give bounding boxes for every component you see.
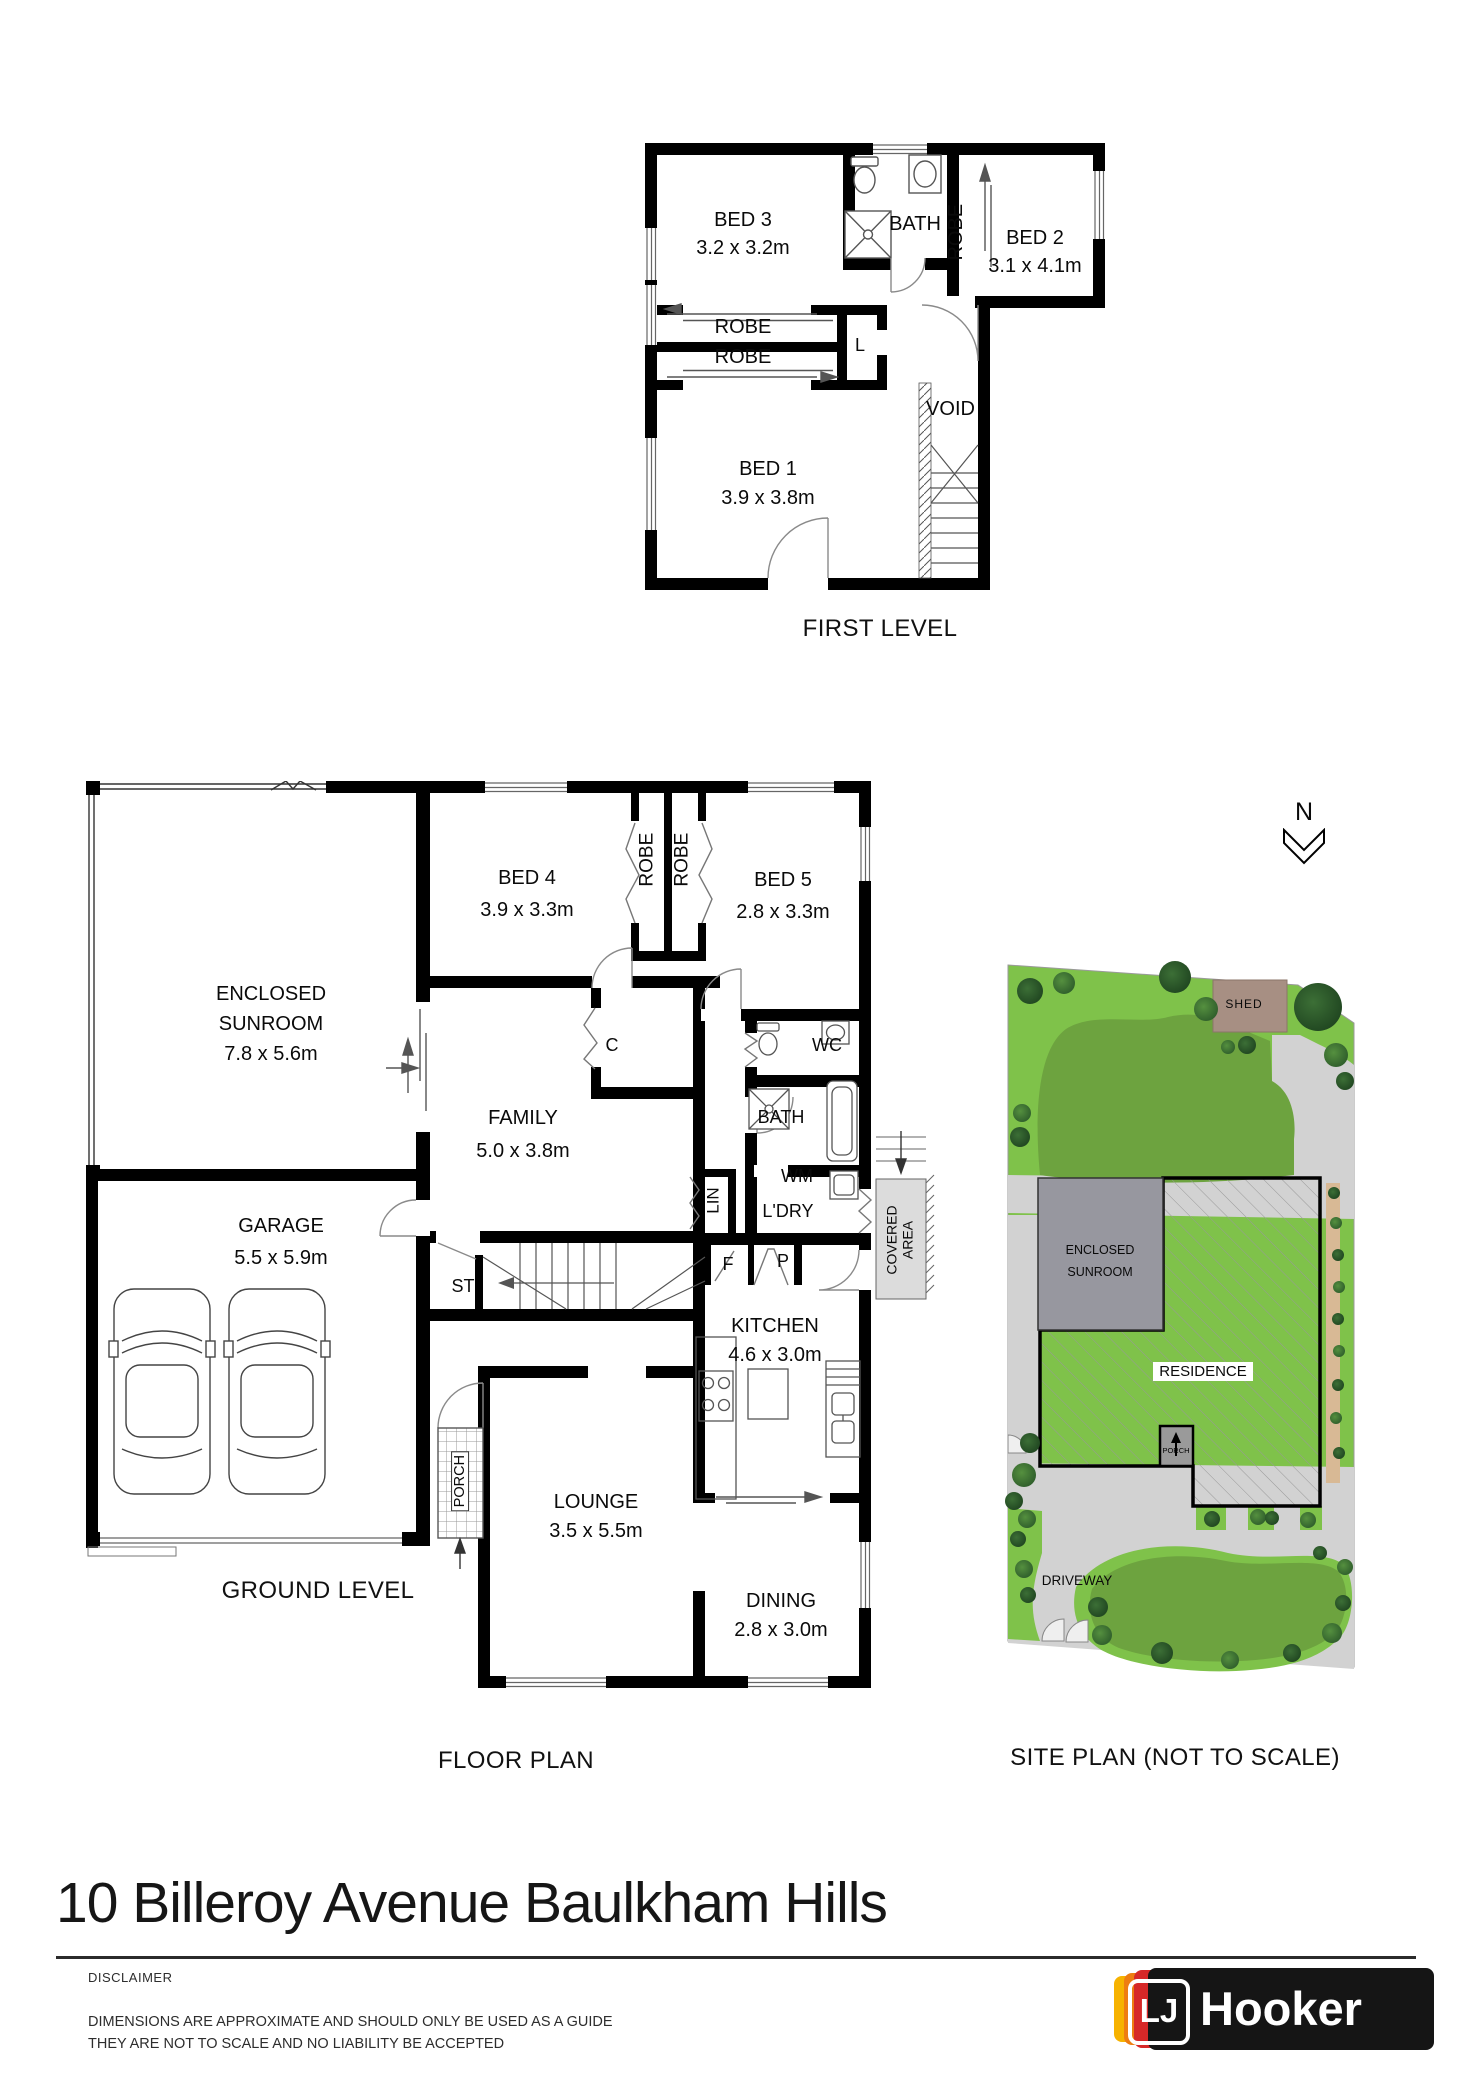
room-label-fridge: F xyxy=(713,1254,743,1274)
sink-icon xyxy=(826,1361,860,1457)
first-level-caption: FIRST LEVEL xyxy=(730,616,1030,643)
north-arrow-icon xyxy=(1282,828,1326,868)
room-label-bed1: BED 1 xyxy=(688,458,848,480)
robe-text: ROBE xyxy=(671,833,692,887)
address-title: 10 Billeroy Avenue Baulkham Hills xyxy=(56,1870,887,1936)
room-dims-kitchen: 4.6 x 3.0m xyxy=(695,1344,855,1366)
room-label-family: FAMILY xyxy=(443,1107,603,1129)
room-label-bed4: BED 4 xyxy=(447,867,607,889)
sunroom-windows xyxy=(89,781,326,1169)
room-label-closet: C xyxy=(592,1035,632,1055)
basin-icon xyxy=(909,155,941,193)
room-label-bath: BATH xyxy=(741,1107,821,1127)
divider-rule xyxy=(56,1956,1416,1959)
room-dims-bed1: 3.9 x 3.8m xyxy=(688,487,848,509)
logo-brand-name: Hooker xyxy=(1200,1981,1362,2036)
room-label-wm: WM xyxy=(767,1166,827,1186)
room-label-st: ST xyxy=(438,1276,488,1296)
porch-text: PORCH xyxy=(451,1451,469,1511)
room-label-robe-top: ROBE xyxy=(663,316,823,338)
room-label-sunroom-2: SUNROOM xyxy=(171,1013,371,1035)
stairs-icon xyxy=(931,445,978,563)
room-label-bed5: BED 5 xyxy=(703,869,863,891)
room-dims-bed5: 2.8 x 3.3m xyxy=(703,901,863,923)
room-dims-dining: 2.8 x 3.0m xyxy=(701,1619,861,1641)
room-label-lounge: LOUNGE xyxy=(516,1491,676,1513)
stairs-arrow xyxy=(498,1277,514,1289)
site-label-sunroom-1: ENCLOSED xyxy=(1036,1243,1164,1257)
disclaimer-line-2: THEY ARE NOT TO SCALE AND NO LIABILITY B… xyxy=(88,2036,504,2052)
toilet-icon xyxy=(757,1023,779,1055)
north-label: N xyxy=(1282,798,1326,826)
room-label-void: VOID xyxy=(913,398,988,420)
room-dims-bed3: 3.2 x 3.2m xyxy=(663,237,823,259)
site-label-residence: RESIDENCE xyxy=(1133,1364,1273,1381)
room-dims-bed2: 3.1 x 4.1m xyxy=(960,255,1110,277)
room-label-ldry: L'DRY xyxy=(748,1201,828,1221)
room-label-bed2: BED 2 xyxy=(960,227,1110,249)
room-dims-sunroom: 7.8 x 5.6m xyxy=(171,1043,371,1065)
island-bench xyxy=(748,1369,788,1419)
site-label-porch: PORCH xyxy=(1152,1447,1200,1455)
room-label-covered: COVERED AREA xyxy=(860,1222,940,1258)
disclaimer-title: DISCLAIMER xyxy=(88,1970,172,1985)
disclaimer-line-1: DIMENSIONS ARE APPROXIMATE AND SHOULD ON… xyxy=(88,2014,613,2030)
room-label-lin: LIN xyxy=(673,1190,753,1212)
entry-arrow xyxy=(455,1539,465,1569)
site-label-sunroom-2: SUNROOM xyxy=(1036,1265,1164,1279)
bathtub-icon xyxy=(827,1081,857,1161)
room-label-robe-bottom: ROBE xyxy=(663,346,823,368)
room-label-sunroom-1: ENCLOSED xyxy=(171,983,371,1005)
room-label-robe-right: ROBE xyxy=(642,849,722,871)
room-label-garage: GARAGE xyxy=(201,1215,361,1237)
washing-machine-icon xyxy=(830,1171,858,1199)
logo-lj-monogram: LJ xyxy=(1128,1979,1190,2045)
room-label-wc: WC xyxy=(797,1035,857,1055)
room-label-linen: L xyxy=(843,335,877,355)
site-plan: SHED ENCLOSED SUNROOM RESIDENCE PORCH DR… xyxy=(1000,953,1360,1698)
garage-step xyxy=(88,1547,176,1556)
first-level-plan: BED 3 3.2 x 3.2m BATH ROBE BED 2 3.1 x 4… xyxy=(645,143,1105,590)
room-dims-lounge: 3.5 x 5.5m xyxy=(516,1520,676,1542)
room-label-pantry: P xyxy=(768,1251,798,1271)
covered-text: COVERED AREA xyxy=(884,1205,916,1274)
room-label-dining: DINING xyxy=(701,1590,861,1612)
site-label-shed: SHED xyxy=(1204,998,1284,1011)
north-indicator: N xyxy=(1282,798,1326,878)
rear-lawn xyxy=(1038,1015,1295,1183)
room-dims-garage: 5.5 x 5.9m xyxy=(201,1247,361,1269)
room-dims-bed4: 3.9 x 3.3m xyxy=(447,899,607,921)
ground-level-caption: GROUND LEVEL xyxy=(168,1578,468,1605)
residence-text: RESIDENCE xyxy=(1153,1362,1253,1381)
front-lawn xyxy=(1090,1556,1347,1661)
room-dims-family: 5.0 x 3.8m xyxy=(443,1140,603,1162)
ground-level-plan: ENCLOSED SUNROOM 7.8 x 5.6m BED 4 3.9 x … xyxy=(86,781,938,1688)
room-label-kitchen: KITCHEN xyxy=(695,1315,855,1337)
car-icon xyxy=(109,1289,215,1494)
room-label-bed3: BED 3 xyxy=(663,209,823,231)
floor-plan-caption: FLOOR PLAN xyxy=(366,1748,666,1775)
site-label-driveway: DRIVEWAY xyxy=(1022,1573,1132,1588)
brand-logo: LJ Hooker xyxy=(1114,1968,1434,2050)
site-plan-caption: SITE PLAN (NOT TO SCALE) xyxy=(1010,1745,1340,1772)
toilet-icon xyxy=(851,157,878,193)
car-icon xyxy=(224,1289,330,1494)
stairs-icon xyxy=(483,1243,705,1309)
room-label-porch: PORCH xyxy=(420,1472,500,1490)
lin-text: LIN xyxy=(703,1188,722,1214)
floorplan-page: BED 3 3.2 x 3.2m BATH ROBE BED 2 3.1 x 4… xyxy=(0,0,1472,2082)
